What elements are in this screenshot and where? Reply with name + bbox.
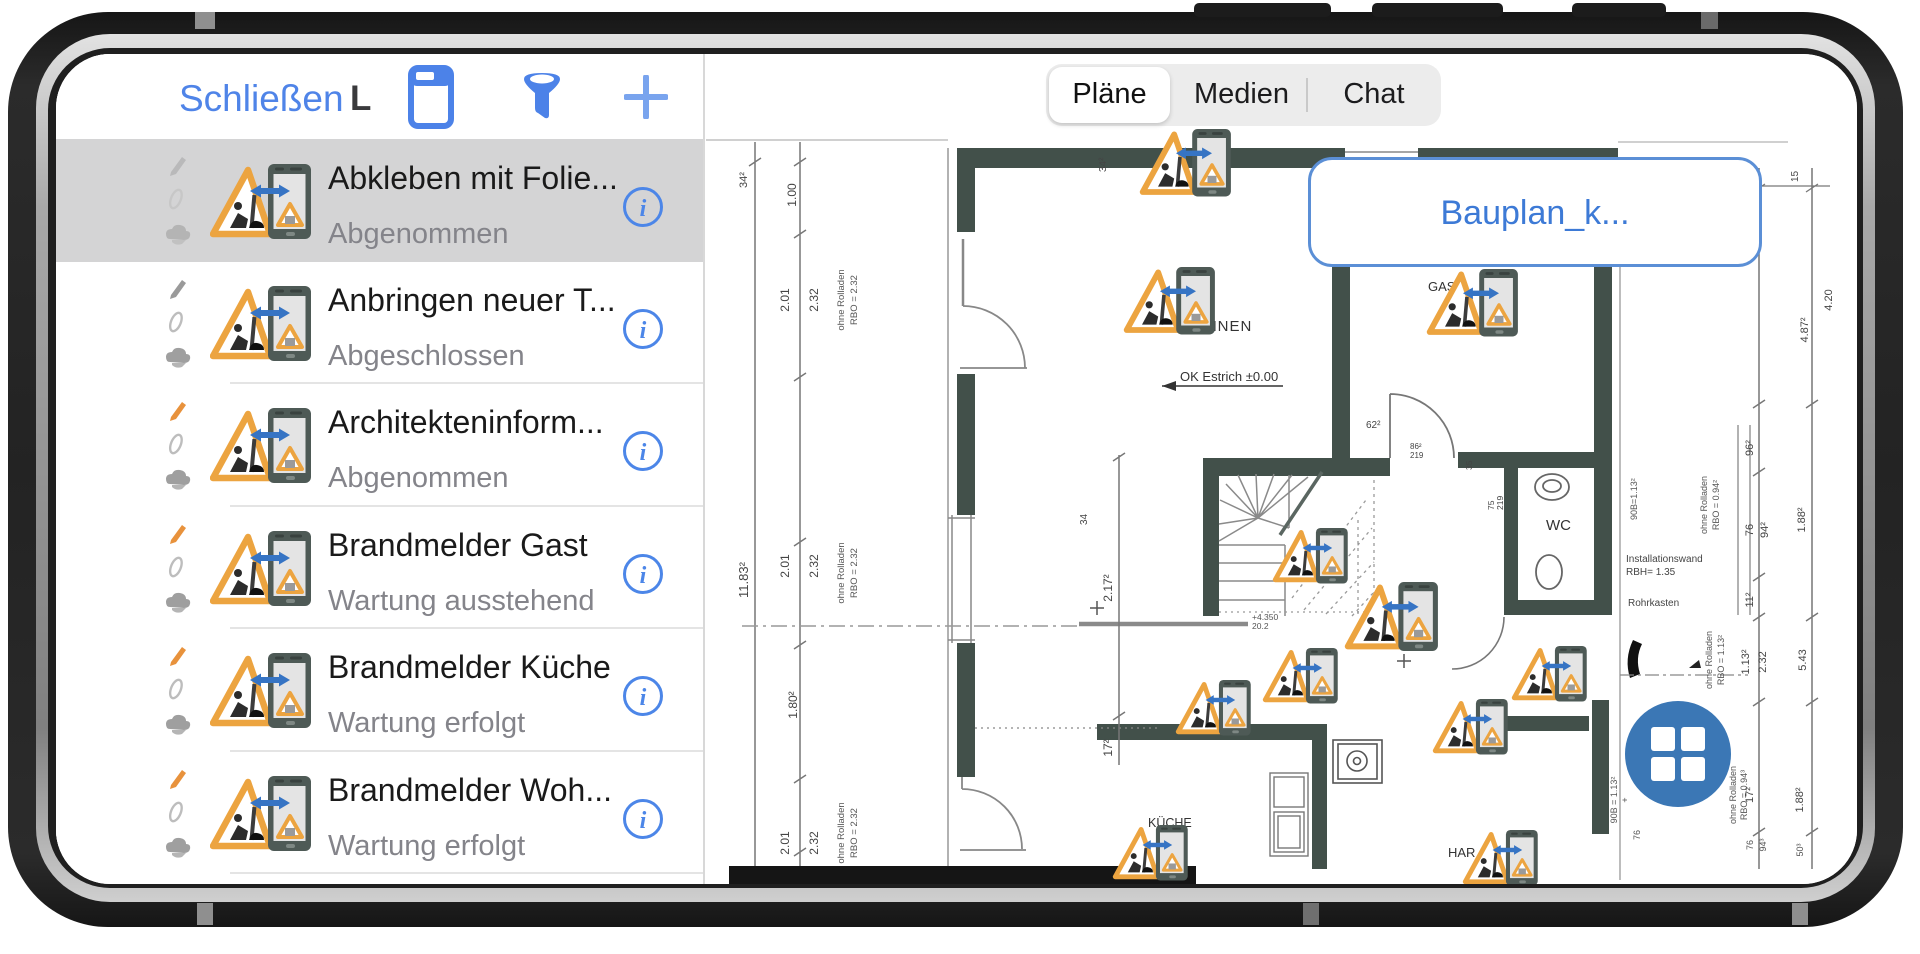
svg-text:RBO = 1.13²: RBO = 1.13²: [1716, 635, 1726, 685]
svg-text:11.83²: 11.83²: [736, 561, 751, 598]
svg-text:RBO = 2.32: RBO = 2.32: [849, 808, 860, 858]
svg-text:219: 219: [1495, 496, 1505, 510]
svg-text:90B=1.13²: 90B=1.13²: [1629, 478, 1639, 520]
svg-text:2.32: 2.32: [1757, 651, 1769, 672]
svg-text:2.32: 2.32: [807, 554, 821, 578]
svg-text:15: 15: [1790, 170, 1801, 182]
svg-text:RBO = 2.32: RBO = 2.32: [849, 548, 860, 598]
svg-text:2.01: 2.01: [778, 288, 792, 312]
svg-text:2.01: 2.01: [778, 831, 792, 855]
svg-text:RBO = 2.32: RBO = 2.32: [849, 275, 860, 325]
svg-text:2.01: 2.01: [778, 554, 792, 578]
svg-text:20.2: 20.2: [1252, 621, 1269, 631]
svg-text:2.32: 2.32: [807, 288, 821, 312]
svg-text:76: 76: [1745, 840, 1755, 850]
svg-text:94²: 94²: [1759, 522, 1771, 538]
svg-text:OK Estrich ±0.00: OK Estrich ±0.00: [1180, 369, 1278, 384]
svg-text:35: 35: [1464, 460, 1474, 470]
svg-text:34²: 34²: [738, 172, 750, 188]
svg-text:1.13²: 1.13²: [1740, 649, 1752, 674]
svg-text:RBH= 1.35: RBH= 1.35: [1626, 567, 1676, 578]
svg-text:ohne Rolladen: ohne Rolladen: [1704, 631, 1714, 689]
svg-text:ohne Rolladen: ohne Rolladen: [836, 542, 847, 603]
svg-text:62²: 62²: [1366, 420, 1381, 431]
svg-text:5.43: 5.43: [1797, 649, 1809, 670]
svg-text:4.20: 4.20: [1823, 289, 1835, 310]
svg-text:1.88²: 1.88²: [1794, 787, 1806, 812]
svg-text:2.17²: 2.17²: [1101, 574, 1115, 601]
svg-text:76: 76: [1632, 830, 1642, 840]
svg-text:ohne Rolladen: ohne Rolladen: [1728, 766, 1738, 824]
svg-text:76: 76: [1744, 524, 1756, 536]
svg-text:+: +: [1620, 797, 1630, 802]
svg-text:96²: 96²: [1744, 440, 1756, 456]
svg-text:ohne Rolladen: ohne Rolladen: [836, 269, 847, 330]
svg-text:ohne Rolladen: ohne Rolladen: [836, 802, 847, 863]
svg-text:1.80²: 1.80²: [786, 691, 800, 718]
svg-text:HAR: HAR: [1448, 845, 1475, 860]
svg-text:219: 219: [1410, 451, 1424, 460]
svg-text:ohne Rolladen: ohne Rolladen: [1699, 476, 1709, 534]
svg-text:4.87²: 4.87²: [1799, 317, 1811, 342]
svg-text:11²: 11²: [1744, 592, 1756, 607]
svg-text:1.88²: 1.88²: [1796, 507, 1808, 532]
svg-text:1.00: 1.00: [785, 183, 799, 207]
svg-text:90B = 1.13²: 90B = 1.13²: [1609, 777, 1619, 824]
svg-text:RBO = 0.94²: RBO = 0.94²: [1711, 480, 1721, 530]
svg-text:34: 34: [1079, 513, 1090, 525]
svg-text:17²: 17²: [1744, 787, 1756, 803]
svg-text:34²: 34²: [1098, 157, 1109, 172]
svg-text:17²: 17²: [1101, 739, 1115, 756]
svg-text:Installationswand: Installationswand: [1626, 554, 1703, 565]
svg-text:50³: 50³: [1795, 843, 1805, 856]
svg-text:Rohrkasten: Rohrkasten: [1628, 598, 1679, 609]
svg-text:WC: WC: [1546, 517, 1571, 534]
svg-text:2.32: 2.32: [807, 831, 821, 855]
svg-text:86²: 86²: [1410, 442, 1422, 451]
